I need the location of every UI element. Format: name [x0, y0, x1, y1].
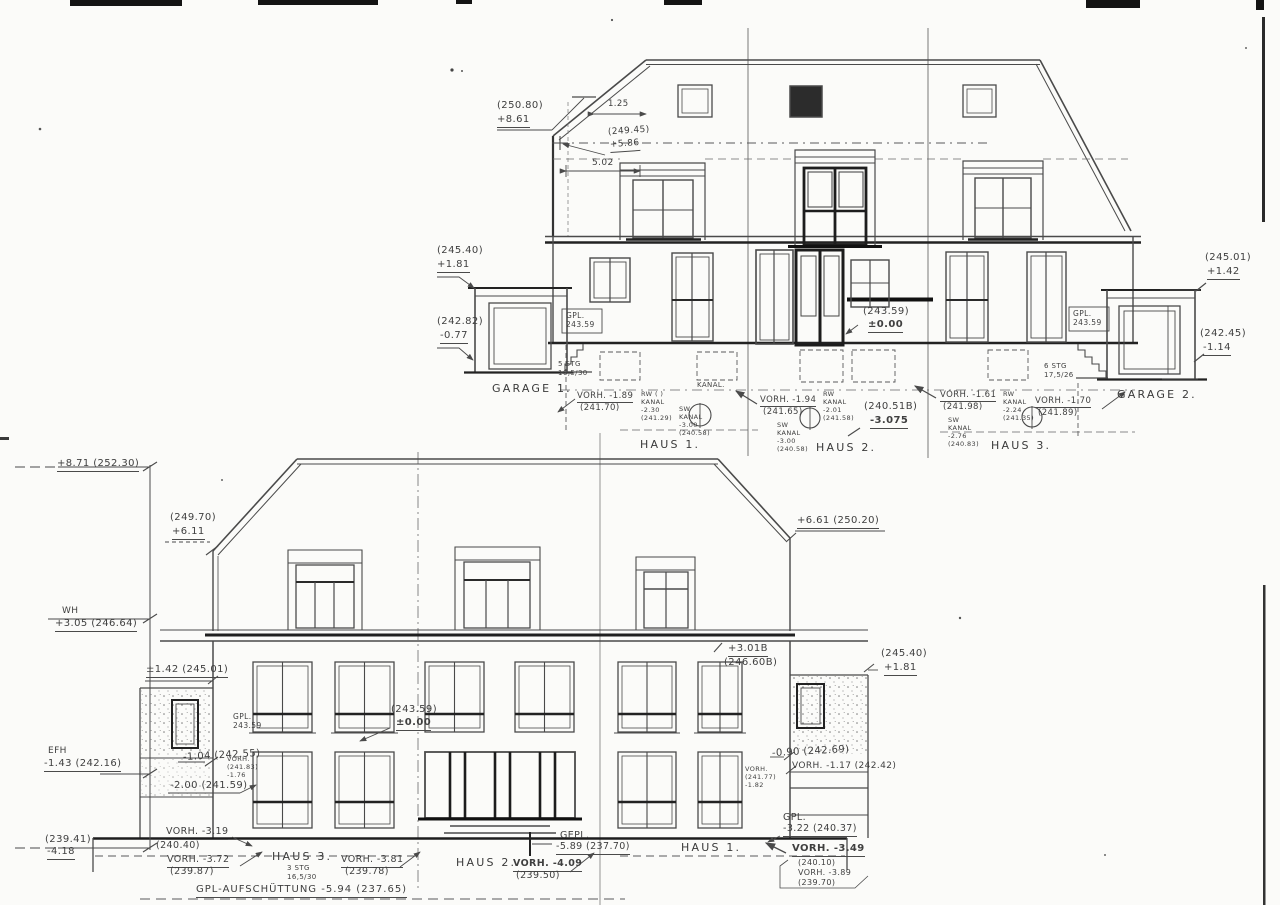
lower-vorh389-block: (240.10) VORH. -3.89 (239.70) [798, 858, 851, 887]
haus3-vorh2-elevation: (241.89) [1038, 408, 1078, 418]
lower-vorh-small-left: VORH. (241.83) -1.76 [227, 756, 258, 780]
lower-zero-relative: ±0.00 [396, 717, 431, 731]
upper-zero-elevation: (243.59) [863, 306, 909, 318]
haus2-level-elevation: (240.51B) [864, 401, 917, 413]
haus1-vorh: VORH. -1.89 [577, 391, 633, 403]
lower-vorh409-elevation: (239.50) [516, 870, 560, 882]
garage2-label: GARAGE 2. [1117, 388, 1197, 401]
garage2-top-elevation: (245.01) [1205, 252, 1251, 264]
lower-gpl-left: GPL. 243.59 [233, 712, 262, 730]
haus3-label-upper: HAUS 3. [991, 439, 1051, 452]
haus1-vorh-elevation: (241.70) [580, 403, 620, 413]
haus1-sw-kanal-note: SW KANAL -3.00 (240.58) [679, 406, 710, 438]
upper-attic-relative: +5.86 [610, 138, 640, 153]
datum-base-elevation: (239.41) [45, 834, 91, 846]
lower-vorh319: VORH. -3.19 [166, 826, 228, 840]
stairs-left-note: 5 STG 16,5/30 [558, 360, 588, 377]
lower-vorh349: VORH. -3.49 [792, 843, 865, 857]
lower-level-m200: -2.00 (241.59) [170, 780, 247, 792]
haus1-rw-kanal-note: RW ( ) KANAL -2.30 (241.29) [641, 391, 672, 423]
datum-wh-label: WH [62, 606, 78, 617]
lower-zero-elevation: (243.59) [391, 704, 437, 716]
kanal-label: KANAL. [697, 381, 725, 390]
haus2-level-relative: -3.075 [870, 415, 908, 429]
haus2-vorh: VORH. -1.94 [760, 395, 816, 407]
garage1-base-elevation: (242.82) [437, 316, 483, 328]
upper-zero-relative: ±0.00 [868, 319, 903, 333]
upper-gpl-left: GPL. 243.59 [566, 311, 595, 329]
datum-ridge-level: +8.71 (252.30) [57, 458, 139, 472]
lower-attic-elevation: (246.60B) [724, 657, 777, 669]
stairs3-note: 3 STG 16,5/30 [287, 864, 317, 881]
lower-wall-right-top-relative: +1.81 [884, 662, 917, 676]
lower-vorh372-elevation: (239.87) [170, 866, 214, 878]
lower-gpl322-label: GPL. [783, 812, 806, 824]
lower-vorh-small-right: VORH. (241.77) -1.82 [745, 766, 776, 790]
lower-vorh381-elevation: (239.78) [345, 866, 389, 878]
datum-efh-level: -1.43 (242.16) [44, 758, 121, 772]
garage2-base-relative: -1.14 [1203, 342, 1231, 356]
datum-efh-label: EFH [48, 746, 67, 757]
garage1-top-elevation: (245.40) [437, 245, 483, 257]
stairs-right-note: 6 STG 17,5/26 [1044, 362, 1074, 379]
garage1-base-relative: -0.77 [440, 330, 468, 344]
lower-vorh117: VORH. -1.17 (242.42) [792, 761, 896, 772]
lower-gpl322-level: -3.22 (240.37) [783, 823, 857, 837]
garage1-label: GARAGE 1. [492, 382, 572, 395]
haus2-label-upper: HAUS 2. [816, 441, 876, 454]
haus2-vorh-elevation: (241.65) [763, 407, 803, 417]
haus3-sw-kanal-note: SW KANAL -2.76 (240.83) [948, 417, 979, 449]
lower-wall-right-top-elevation: (245.40) [881, 648, 927, 660]
upper-gpl-right: GPL. 243.59 [1073, 309, 1102, 327]
haus3-rw-kanal-note: RW KANAL -2.24 (241.35) [1003, 391, 1034, 423]
haus3-label-lower: HAUS 3. [272, 850, 332, 863]
garage2-base-elevation: (242.45) [1200, 328, 1246, 340]
haus2-rw-kanal-note: RW KANAL -2.01 (241.58) [823, 391, 854, 423]
scanned-elevation-drawing-sheet: (250.80) +8.61 1.25 (249.45) +5.86 5.02 … [0, 0, 1280, 905]
haus1-label-lower: HAUS 1. [681, 841, 741, 854]
lower-level-24040: (240.40) [156, 840, 200, 852]
haus3-vorh2: VORH. -1.70 [1035, 396, 1091, 408]
lower-roof-left-elevation: (249.70) [170, 512, 216, 524]
upper-dim-overhang: 1.25 [608, 99, 629, 109]
haus2-label-lower: HAUS 2. [456, 856, 516, 869]
lower-wall-left-top-level: ±1.42 (245.01) [146, 664, 228, 678]
garage2-top-relative: +1.42 [1207, 266, 1240, 280]
lower-roof-right-level: +6.61 (250.20) [797, 515, 879, 529]
upper-dim-gable: 5.02 [592, 158, 614, 169]
lower-attic-relative: +3.01B [728, 643, 768, 657]
datum-base-relative: -4.18 [47, 846, 75, 860]
lower-gepl-label: GEPL. [560, 830, 589, 842]
lower-gepl-level: -5.89 (237.70) [556, 841, 630, 855]
fill-note: GPL-AUFSCHÜTTUNG -5.94 (237.65) [196, 884, 407, 898]
upper-ridge-elevation: (250.80) [497, 100, 543, 112]
haus2-sw-kanal-note: SW KANAL -3.00 (240.58) [777, 422, 808, 454]
haus3-vorh-elevation: (241.98) [943, 402, 983, 412]
lower-roof-left-relative: +6.11 [172, 526, 205, 540]
haus1-label-upper: HAUS 1. [640, 438, 700, 451]
haus3-vorh: VORH. -1.61 [940, 390, 996, 402]
garage1-top-relative: +1.81 [437, 259, 470, 273]
upper-ridge-relative: +8.61 [497, 114, 530, 128]
datum-wh-level: +3.05 (246.64) [55, 618, 137, 632]
